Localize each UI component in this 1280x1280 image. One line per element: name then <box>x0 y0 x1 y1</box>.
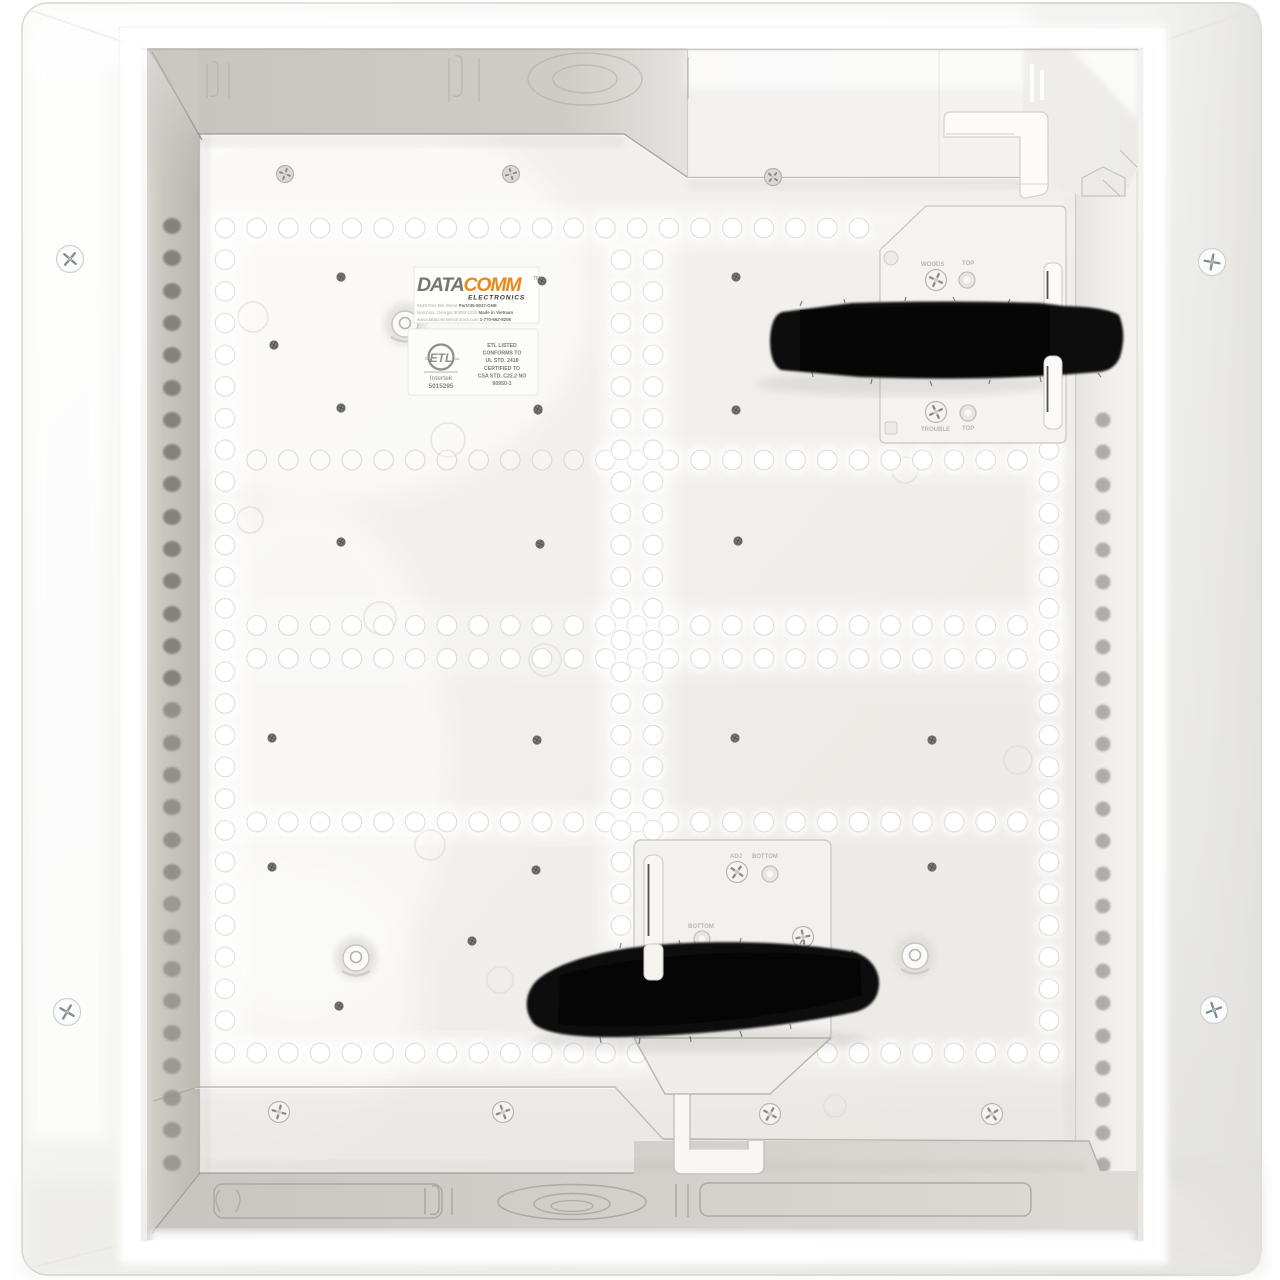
svg-text:CERTIFIED TO: CERTIFIED TO <box>484 366 520 372</box>
svg-text:DATACOMM: DATACOMM <box>417 274 522 296</box>
svg-text:6549 Pine Brk Street Part#45: 6549 Pine Brk Street Part#45-8017-ONE <box>417 303 497 308</box>
svg-text:Intertek: Intertek <box>430 375 453 382</box>
svg-text:TROUBLE: TROUBLE <box>921 427 950 433</box>
svg-text:BOTTOM: BOTTOM <box>752 854 778 860</box>
svg-text:www.datacommelectronics.com 1: www.datacommelectronics.com 1-770-662-82… <box>417 317 512 322</box>
svg-text:CONFORMS TO: CONFORMS TO <box>483 351 522 357</box>
svg-text:WOODS: WOODS <box>921 262 944 268</box>
svg-text:TOP: TOP <box>962 426 974 432</box>
svg-text:CSA STD. C22.2 NO: CSA STD. C22.2 NO <box>478 373 527 379</box>
svg-text:ADJ: ADJ <box>730 854 742 860</box>
svg-text:ELECTRONICS: ELECTRONICS <box>468 295 525 302</box>
svg-text:UL STD. 2418: UL STD. 2418 <box>485 358 518 364</box>
svg-text:60950-1: 60950-1 <box>492 381 511 387</box>
svg-text:BOTTOM: BOTTOM <box>688 924 714 930</box>
svg-text:ETL: ETL <box>430 351 453 365</box>
svg-text:5015295: 5015295 <box>429 383 454 390</box>
svg-text:us: us <box>455 356 459 361</box>
svg-text:ETL LISTED: ETL LISTED <box>487 343 517 349</box>
svg-text:Norcross, Georgia 30093-1225: Norcross, Georgia 30093-1225 Made in Vie… <box>417 310 513 315</box>
svg-text:TOP: TOP <box>962 261 974 267</box>
